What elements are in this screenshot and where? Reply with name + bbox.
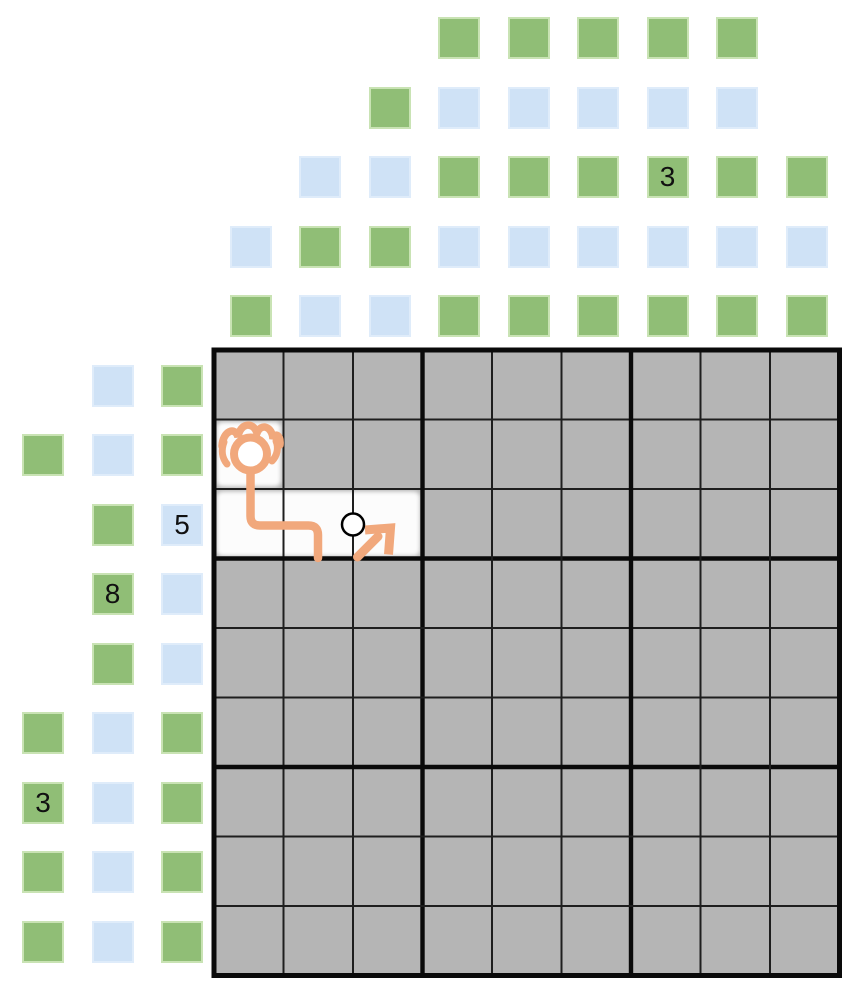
grid-cell[interactable] bbox=[214, 559, 284, 629]
top-clue-square-c4-o3 bbox=[438, 156, 480, 198]
grid-cell[interactable] bbox=[631, 559, 701, 629]
top-clue-square-c3-o1 bbox=[369, 295, 411, 337]
grid-cell[interactable] bbox=[701, 420, 771, 490]
grid-cell[interactable] bbox=[214, 350, 284, 420]
top-clue-square-c6-o3 bbox=[577, 156, 619, 198]
left-clue-square-r3-o1: 5 bbox=[161, 504, 203, 546]
clue-number: 5 bbox=[174, 511, 190, 539]
top-clue-square-c8-o2 bbox=[716, 226, 758, 268]
grid-cell[interactable] bbox=[770, 489, 840, 559]
grid-cell[interactable] bbox=[214, 906, 284, 976]
grid-cell[interactable] bbox=[492, 489, 562, 559]
grid-cell[interactable] bbox=[770, 628, 840, 698]
grid-cell[interactable] bbox=[631, 837, 701, 907]
top-clue-square-c6-o2 bbox=[577, 226, 619, 268]
grid-cell[interactable] bbox=[353, 767, 423, 837]
grid-cell[interactable] bbox=[423, 837, 493, 907]
top-clue-square-c9-o2 bbox=[786, 226, 828, 268]
top-clue-square-c1-o2 bbox=[230, 226, 272, 268]
top-clue-square-c4-o4 bbox=[438, 87, 480, 129]
top-clue-square-c7-o3: 3 bbox=[647, 156, 689, 198]
grid-cell[interactable] bbox=[353, 837, 423, 907]
left-clue-square-r4-o1 bbox=[161, 573, 203, 615]
grid-cell[interactable] bbox=[214, 489, 284, 559]
left-clue-square-r4-o2: 8 bbox=[92, 573, 134, 615]
top-clue-square-c3-o4 bbox=[369, 87, 411, 129]
grid-cell[interactable] bbox=[562, 698, 632, 768]
grid-cell[interactable] bbox=[562, 350, 632, 420]
left-clue-square-r1-o1 bbox=[161, 365, 203, 407]
grid-cell[interactable] bbox=[423, 420, 493, 490]
grid-cell[interactable] bbox=[353, 906, 423, 976]
top-clue-square-c6-o4 bbox=[577, 87, 619, 129]
grid-cell[interactable] bbox=[284, 350, 354, 420]
grid-cell[interactable] bbox=[284, 698, 354, 768]
clue-number: 3 bbox=[660, 163, 676, 191]
grid-cell[interactable] bbox=[284, 420, 354, 490]
grid-cell[interactable] bbox=[631, 906, 701, 976]
left-clue-square-r8-o1 bbox=[161, 851, 203, 893]
top-clue-square-c8-o5 bbox=[716, 17, 758, 59]
grid-cell[interactable] bbox=[770, 837, 840, 907]
top-clue-square-c7-o1 bbox=[647, 295, 689, 337]
left-clue-square-r9-o1 bbox=[161, 921, 203, 963]
grid-cell[interactable] bbox=[562, 559, 632, 629]
grid-cell[interactable] bbox=[770, 698, 840, 768]
left-clue-square-r8-o3 bbox=[22, 851, 64, 893]
grid-cell[interactable] bbox=[423, 906, 493, 976]
grid-cell[interactable] bbox=[353, 559, 423, 629]
top-clue-square-c8-o4 bbox=[716, 87, 758, 129]
grid-cell[interactable] bbox=[701, 698, 771, 768]
grid-cell[interactable] bbox=[353, 698, 423, 768]
grid-cell[interactable] bbox=[214, 698, 284, 768]
left-clue-square-r3-o2 bbox=[92, 504, 134, 546]
top-clue-square-c6-o1 bbox=[577, 295, 619, 337]
top-clue-square-c3-o3 bbox=[369, 156, 411, 198]
grid-cell[interactable] bbox=[770, 559, 840, 629]
grid-cell[interactable] bbox=[423, 350, 493, 420]
grid-cell[interactable] bbox=[423, 559, 493, 629]
grid-cell[interactable] bbox=[701, 767, 771, 837]
grid-cell[interactable] bbox=[492, 698, 562, 768]
grid-cell[interactable] bbox=[770, 420, 840, 490]
top-clue-square-c2-o1 bbox=[299, 295, 341, 337]
top-clue-square-c9-o3 bbox=[786, 156, 828, 198]
top-clue-square-c5-o3 bbox=[508, 156, 550, 198]
grid-cell[interactable] bbox=[353, 350, 423, 420]
grid-cell[interactable] bbox=[214, 837, 284, 907]
grid-cell[interactable] bbox=[701, 489, 771, 559]
grid-cell[interactable] bbox=[492, 559, 562, 629]
puzzle-grid bbox=[202, 338, 852, 988]
left-clue-square-r2-o2 bbox=[92, 434, 134, 476]
grid-cell[interactable] bbox=[562, 628, 632, 698]
top-clue-square-c7-o5 bbox=[647, 17, 689, 59]
top-clue-square-c4-o1 bbox=[438, 295, 480, 337]
grid-cell[interactable] bbox=[701, 628, 771, 698]
puzzle-stage: 3 385 bbox=[0, 0, 859, 997]
top-clue-square-c5-o5 bbox=[508, 17, 550, 59]
left-clue-square-r6-o1 bbox=[161, 712, 203, 754]
grid-cell[interactable] bbox=[423, 698, 493, 768]
grid-cell[interactable] bbox=[284, 489, 354, 559]
grid-cell[interactable] bbox=[562, 420, 632, 490]
clue-number: 8 bbox=[105, 580, 121, 608]
grid-cell[interactable] bbox=[631, 420, 701, 490]
left-clue-square-r2-o3 bbox=[22, 434, 64, 476]
grid-cell[interactable] bbox=[631, 489, 701, 559]
grid-cell[interactable] bbox=[284, 767, 354, 837]
grid-cell[interactable] bbox=[631, 350, 701, 420]
grid-cell[interactable] bbox=[214, 767, 284, 837]
top-clue-square-c5-o2 bbox=[508, 226, 550, 268]
grid-cell[interactable] bbox=[770, 767, 840, 837]
grid-cell[interactable] bbox=[631, 698, 701, 768]
left-clue-square-r5-o2 bbox=[92, 643, 134, 685]
grid-cell[interactable] bbox=[284, 628, 354, 698]
grid-cell[interactable] bbox=[562, 489, 632, 559]
top-clue-square-c2-o3 bbox=[299, 156, 341, 198]
grid-cell[interactable] bbox=[284, 837, 354, 907]
grid-cell[interactable] bbox=[423, 767, 493, 837]
grid-cell[interactable] bbox=[492, 837, 562, 907]
grid-cell[interactable] bbox=[353, 628, 423, 698]
grid-cell[interactable] bbox=[701, 837, 771, 907]
clue-number: 3 bbox=[35, 789, 51, 817]
top-clue-square-c5-o1 bbox=[508, 295, 550, 337]
left-clue-square-r1-o2 bbox=[92, 365, 134, 407]
grid-cell[interactable] bbox=[492, 906, 562, 976]
top-clue-square-c1-o1 bbox=[230, 295, 272, 337]
left-clue-square-r7-o3: 3 bbox=[22, 782, 64, 824]
grid-cell[interactable] bbox=[631, 628, 701, 698]
top-clue-square-c5-o4 bbox=[508, 87, 550, 129]
grid-cell[interactable] bbox=[284, 559, 354, 629]
grid-cell[interactable] bbox=[492, 350, 562, 420]
top-clue-square-c7-o4 bbox=[647, 87, 689, 129]
top-clue-square-c8-o3 bbox=[716, 156, 758, 198]
grid-cell[interactable] bbox=[631, 767, 701, 837]
left-clue-square-r9-o2 bbox=[92, 921, 134, 963]
grid-cell[interactable] bbox=[562, 837, 632, 907]
grid-cell[interactable] bbox=[353, 489, 423, 559]
grid-cell[interactable] bbox=[353, 420, 423, 490]
grid-cell[interactable] bbox=[423, 489, 493, 559]
top-clue-square-c8-o1 bbox=[716, 295, 758, 337]
grid-cell[interactable] bbox=[492, 767, 562, 837]
grid-cell[interactable] bbox=[562, 767, 632, 837]
left-clue-square-r9-o3 bbox=[22, 921, 64, 963]
grid-cell[interactable] bbox=[770, 906, 840, 976]
left-clue-square-r5-o1 bbox=[161, 643, 203, 685]
left-clue-square-r6-o3 bbox=[22, 712, 64, 754]
grid-cell[interactable] bbox=[214, 420, 284, 490]
top-clue-square-c6-o5 bbox=[577, 17, 619, 59]
grid-cell[interactable] bbox=[701, 559, 771, 629]
left-clue-square-r8-o2 bbox=[92, 851, 134, 893]
grid-cell[interactable] bbox=[562, 906, 632, 976]
grid-cell[interactable] bbox=[214, 628, 284, 698]
left-clue-square-r2-o1 bbox=[161, 434, 203, 476]
grid-cell[interactable] bbox=[701, 350, 771, 420]
top-clue-square-c4-o5 bbox=[438, 17, 480, 59]
grid-cell[interactable] bbox=[492, 628, 562, 698]
top-clue-square-c9-o1 bbox=[786, 295, 828, 337]
left-clue-square-r6-o2 bbox=[92, 712, 134, 754]
grid-cell[interactable] bbox=[701, 906, 771, 976]
left-clue-square-r7-o2 bbox=[92, 782, 134, 824]
top-clue-square-c2-o2 bbox=[299, 226, 341, 268]
top-clue-square-c7-o2 bbox=[647, 226, 689, 268]
top-clue-square-c3-o2 bbox=[369, 226, 411, 268]
left-clue-square-r7-o1 bbox=[161, 782, 203, 824]
grid-cell[interactable] bbox=[770, 350, 840, 420]
grid-cell[interactable] bbox=[284, 906, 354, 976]
grid-cell[interactable] bbox=[492, 420, 562, 490]
top-clue-square-c4-o2 bbox=[438, 226, 480, 268]
grid-cell[interactable] bbox=[423, 628, 493, 698]
